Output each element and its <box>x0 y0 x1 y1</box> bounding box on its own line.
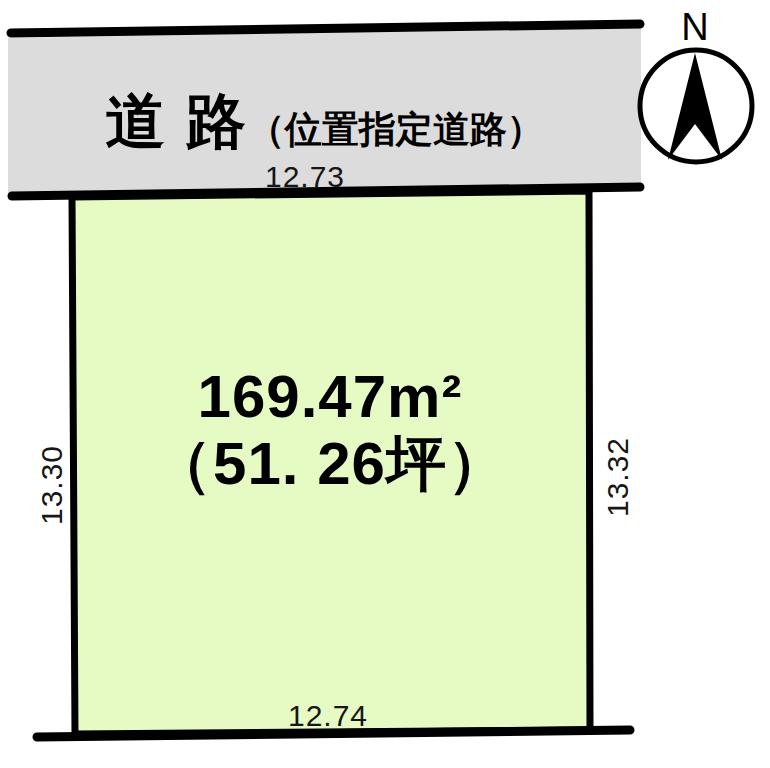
dimension-bottom-label: 12.74 <box>288 699 368 733</box>
road-label: 道 路（位置指定道路） <box>8 82 641 163</box>
dimension-top-label: 12.73 <box>265 160 345 194</box>
dimension-left-label: 13.30 <box>35 445 69 525</box>
road-name-label: 道 路 <box>105 88 248 155</box>
compass-north-label: N <box>681 6 708 49</box>
dimension-right-label: 13.32 <box>601 437 635 517</box>
plot-area-label: 169.47m² （51. 26坪） <box>152 363 508 497</box>
area-tsubo-label: （51. 26坪） <box>152 430 508 497</box>
land-plot-diagram: 道 路（位置指定道路） 12.73 13.30 13.32 12.74 169.… <box>0 0 770 768</box>
area-sqm-label: 169.47m² <box>152 363 508 430</box>
road-type-label: （位置指定道路） <box>248 109 544 150</box>
